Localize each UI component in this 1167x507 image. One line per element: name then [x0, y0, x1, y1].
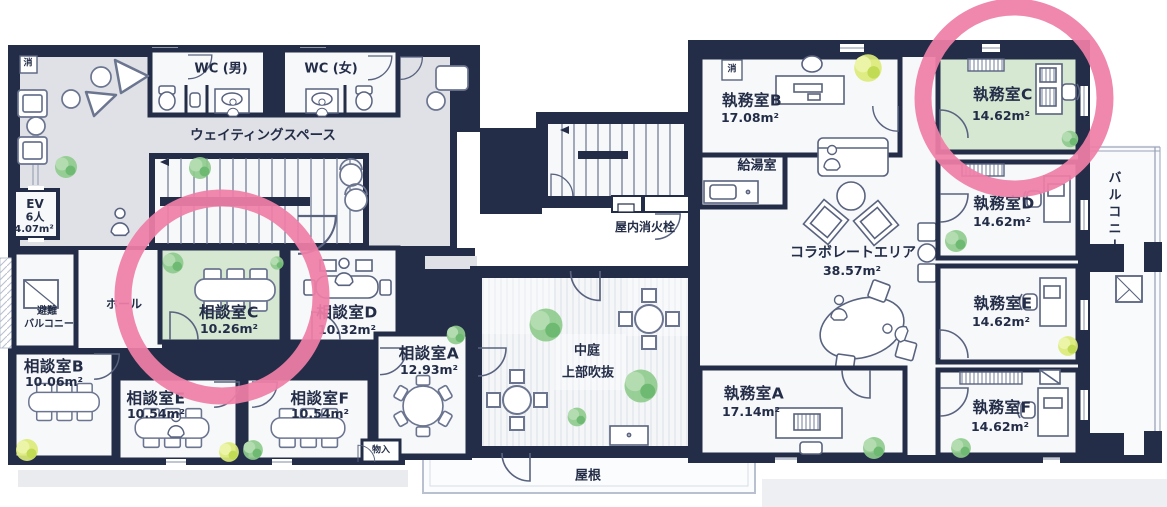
room-shitsumu-f [938, 370, 1078, 458]
evac-balcony [14, 252, 76, 348]
room-shitsumu-c [938, 57, 1080, 152]
center-core [480, 112, 702, 239]
elevator [14, 186, 58, 242]
hall-floor [76, 250, 162, 348]
storage-closet [358, 440, 400, 462]
floor-plan: ウェイティングスペース WC (男) WC (女) EV 6人 4.07m² 避… [0, 0, 1167, 507]
room-sodan-c [160, 248, 284, 342]
room-sodan-f [246, 378, 370, 460]
fire-extinguisher-box-left [20, 56, 37, 73]
sink-unit [610, 426, 648, 445]
room-shitsumu-a [700, 368, 905, 459]
toilet-icon [159, 86, 175, 110]
toilet-icon [356, 86, 372, 110]
wc-area [150, 50, 422, 116]
ground-band-left [18, 470, 408, 487]
room-sodan-b [14, 352, 119, 461]
room-sodan-d [288, 248, 398, 342]
fire-extinguisher-box-right [722, 60, 742, 80]
right-wing [688, 40, 1090, 463]
room-shitsumu-d [938, 162, 1078, 258]
room-shitsumu-e [938, 266, 1078, 362]
wc-shaft [263, 50, 285, 115]
ground-band-right [762, 479, 1167, 507]
courtyard [470, 266, 708, 481]
urinal-icon [190, 93, 200, 107]
kitchenette-room [700, 155, 785, 207]
escape-hatch-icon [1116, 276, 1142, 302]
escape-hatch-icon [24, 280, 58, 308]
stairs-main [152, 156, 366, 246]
stairs-center [536, 112, 696, 208]
room-sodan-a [376, 326, 468, 456]
floor-plan-canvas [0, 0, 1167, 507]
left-wing [0, 45, 480, 466]
